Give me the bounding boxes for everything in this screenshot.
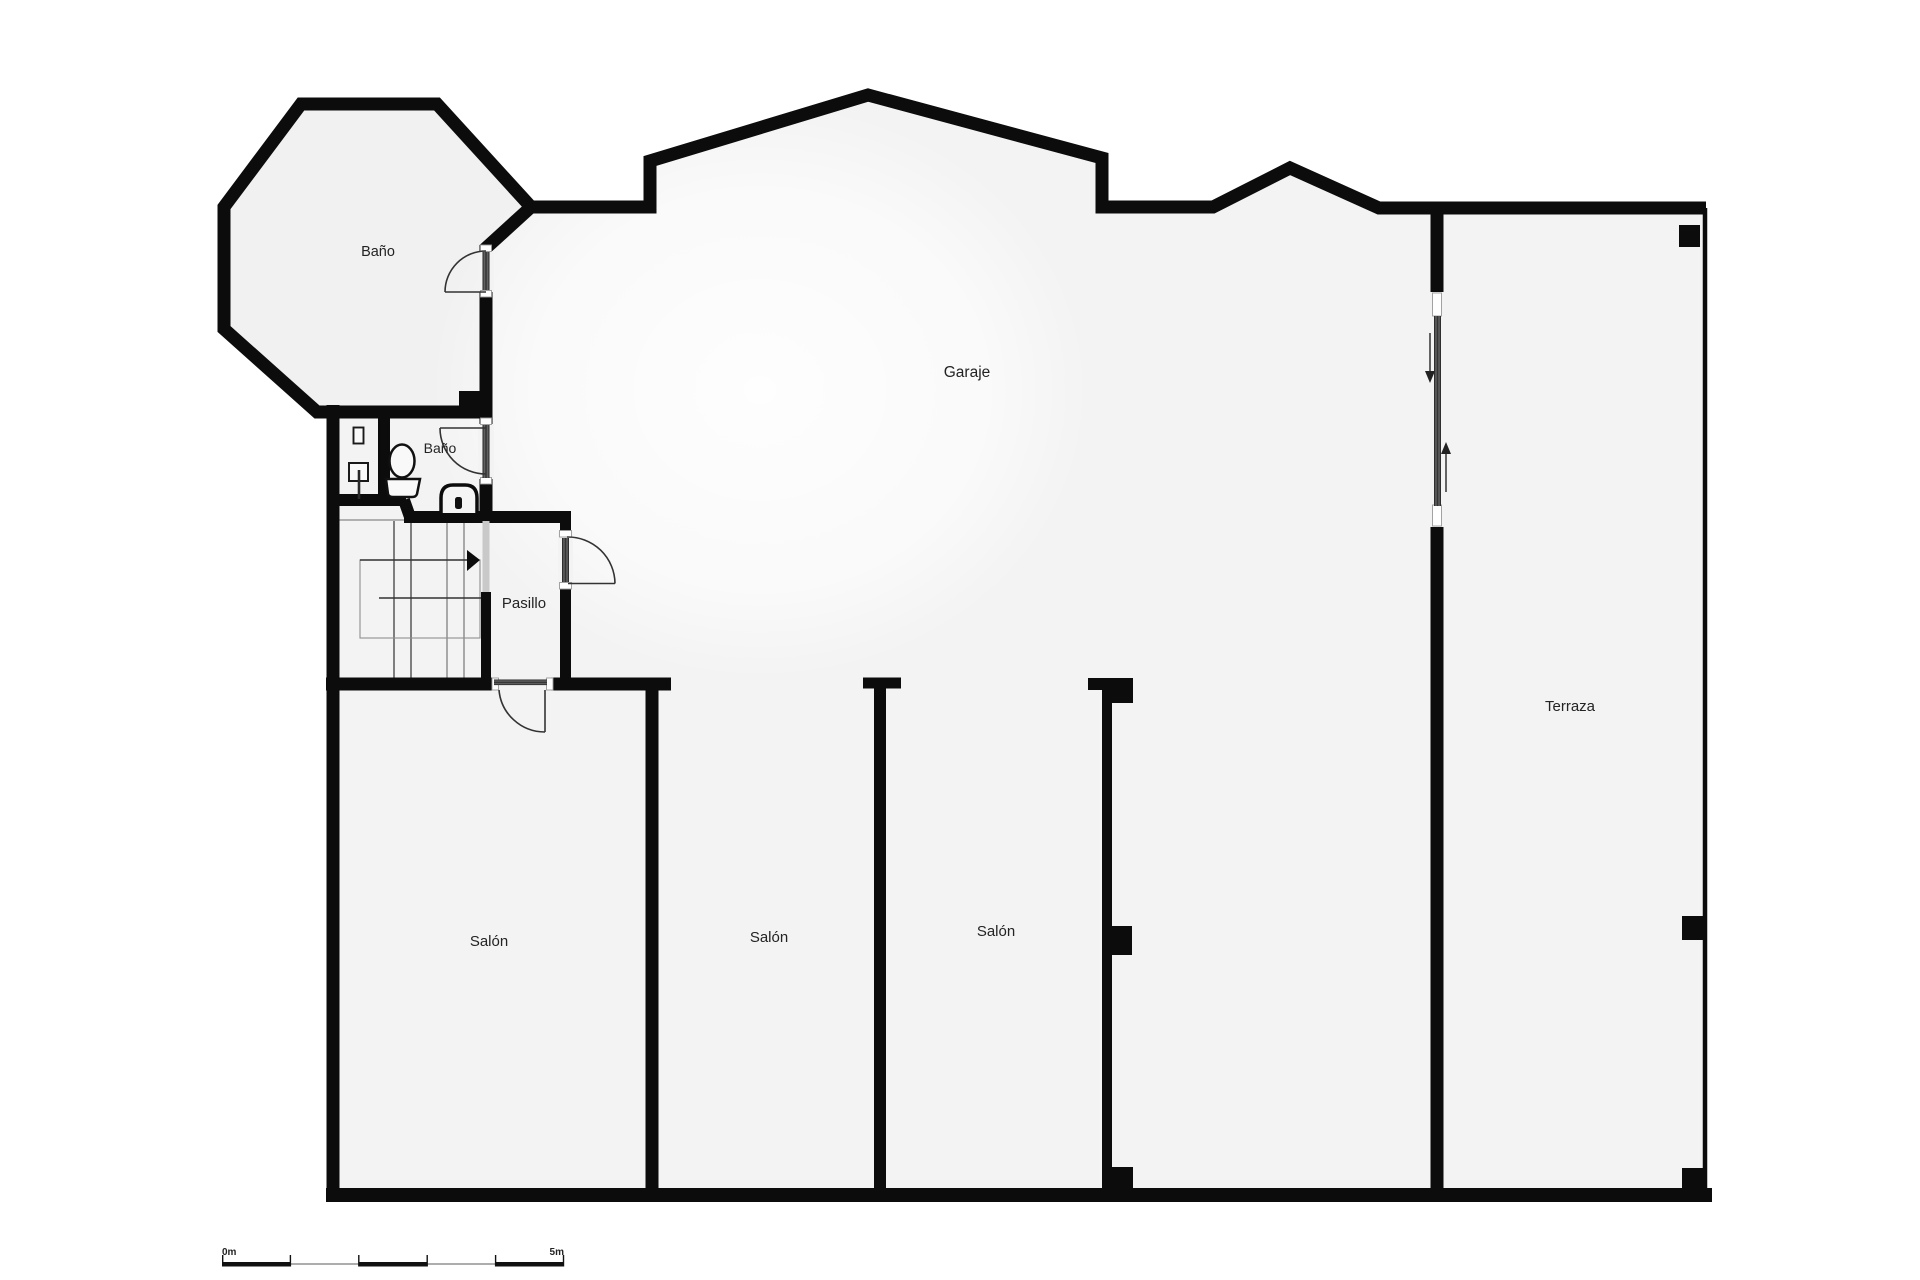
svg-text:Salón: Salón (750, 929, 788, 946)
svg-text:Baño: Baño (361, 244, 395, 260)
svg-text:Baño: Baño (424, 440, 457, 456)
svg-text:0m: 0m (222, 1247, 237, 1258)
svg-text:Pasillo: Pasillo (502, 595, 546, 612)
svg-text:5m: 5m (550, 1247, 565, 1258)
svg-text:Garaje: Garaje (944, 364, 991, 381)
svg-text:Salón: Salón (977, 923, 1015, 940)
svg-text:Salón: Salón (470, 933, 508, 950)
svg-text:Terraza: Terraza (1545, 698, 1596, 715)
